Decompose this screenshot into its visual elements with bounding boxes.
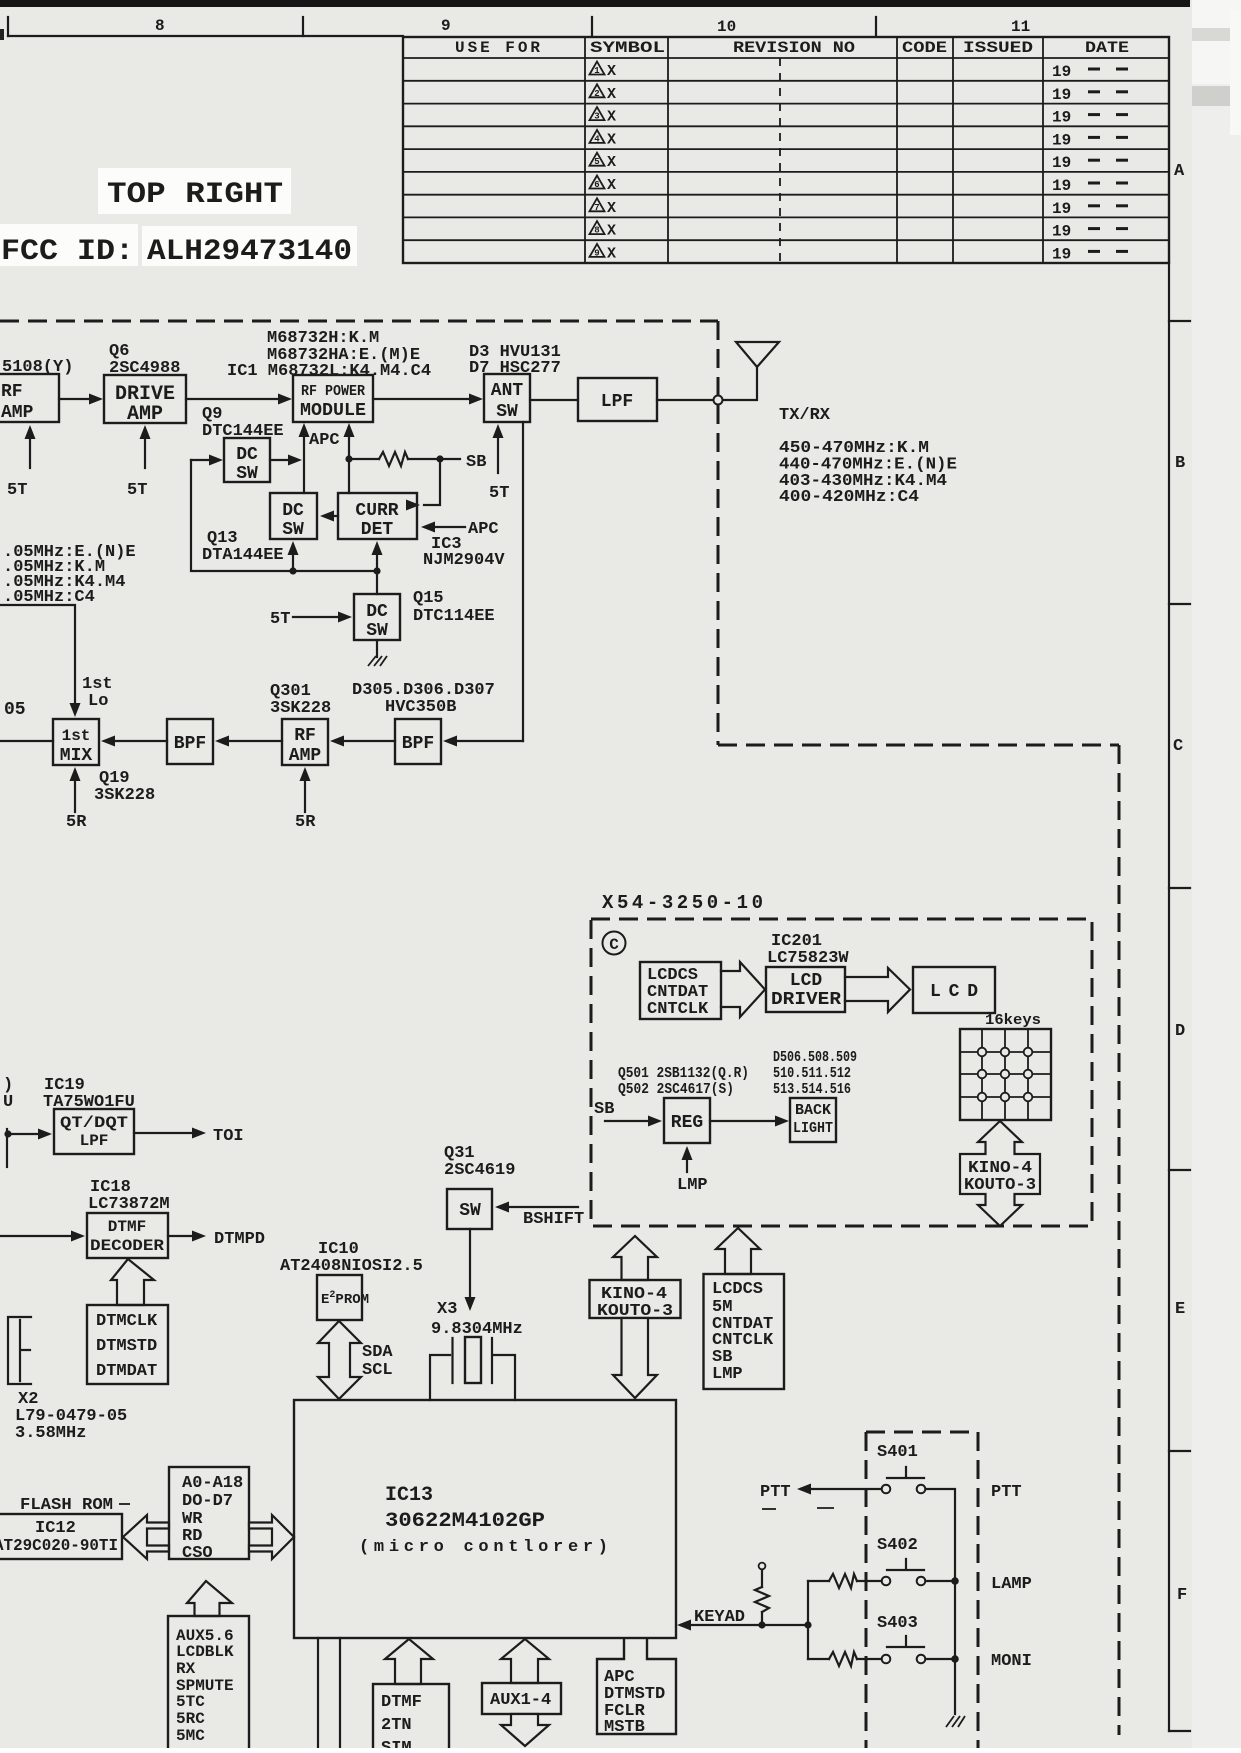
svg-text:HVC350B: HVC350B bbox=[385, 698, 456, 717]
svg-text:19: 19 bbox=[1052, 154, 1071, 172]
svg-text:AUX1-4: AUX1-4 bbox=[490, 1691, 551, 1710]
svg-text:MIX: MIX bbox=[60, 746, 93, 766]
svg-text:IC13: IC13 bbox=[385, 1484, 433, 1507]
svg-text:7: 7 bbox=[594, 203, 599, 213]
svg-text:RF: RF bbox=[1, 382, 23, 402]
svg-text:30622M4102GP: 30622M4102GP bbox=[385, 1510, 545, 1533]
svg-text:D7 HSC277: D7 HSC277 bbox=[469, 359, 561, 378]
svg-text:X: X bbox=[607, 223, 616, 240]
svg-text:BPF: BPF bbox=[174, 734, 206, 754]
svg-text:ANT: ANT bbox=[491, 381, 524, 401]
svg-text:REVISION NO: REVISION NO bbox=[733, 39, 855, 57]
svg-text:SB: SB bbox=[466, 453, 486, 472]
svg-text:REG: REG bbox=[671, 1113, 703, 1133]
svg-text:X: X bbox=[607, 154, 616, 171]
svg-text:19: 19 bbox=[1052, 86, 1071, 104]
svg-text:5RC: 5RC bbox=[176, 1710, 205, 1728]
svg-text:DC: DC bbox=[366, 602, 388, 622]
svg-text:CODE: CODE bbox=[902, 39, 947, 57]
svg-text:5R: 5R bbox=[295, 813, 316, 832]
svg-text:DTMF: DTMF bbox=[381, 1693, 422, 1712]
svg-text:Q502 2SC4617(S): Q502 2SC4617(S) bbox=[618, 1082, 734, 1098]
svg-text:LCDCS: LCDCS bbox=[712, 1280, 763, 1299]
svg-text:CNTCLK: CNTCLK bbox=[647, 1000, 709, 1019]
svg-text:F: F bbox=[1177, 1586, 1187, 1605]
svg-text:X3: X3 bbox=[437, 1300, 457, 1319]
svg-text:X: X bbox=[607, 177, 616, 194]
svg-text:Q15: Q15 bbox=[413, 589, 444, 608]
svg-text:MODULE: MODULE bbox=[300, 401, 366, 421]
svg-text:5MC: 5MC bbox=[176, 1727, 205, 1745]
svg-text:10: 10 bbox=[717, 18, 736, 36]
svg-text:SDA: SDA bbox=[362, 1343, 393, 1362]
svg-text:513.514.516: 513.514.516 bbox=[773, 1082, 851, 1098]
svg-text:DTMCLK: DTMCLK bbox=[96, 1312, 158, 1331]
svg-text:SW: SW bbox=[459, 1201, 481, 1221]
svg-text:19: 19 bbox=[1052, 223, 1071, 241]
svg-text:SB: SB bbox=[594, 1100, 614, 1119]
svg-text:Lo: Lo bbox=[88, 692, 108, 711]
svg-text:C: C bbox=[609, 936, 619, 954]
svg-text:LMP: LMP bbox=[677, 1176, 708, 1195]
svg-text:QT/DQT: QT/DQT bbox=[60, 1114, 128, 1132]
svg-text:2TN: 2TN bbox=[381, 1716, 412, 1735]
svg-text:S401: S401 bbox=[877, 1443, 918, 1462]
svg-text:LC73872M: LC73872M bbox=[88, 1195, 170, 1214]
svg-text:PTT: PTT bbox=[991, 1483, 1022, 1502]
svg-text:DO-D7: DO-D7 bbox=[182, 1492, 233, 1511]
svg-text:ISSUED: ISSUED bbox=[963, 39, 1033, 57]
svg-text:SW: SW bbox=[496, 402, 518, 422]
svg-text:4: 4 bbox=[594, 134, 600, 144]
svg-text:TOP RIGHT: TOP RIGHT bbox=[107, 178, 283, 212]
svg-text:AMP: AMP bbox=[289, 746, 322, 766]
svg-text:MSTB: MSTB bbox=[604, 1718, 645, 1737]
svg-text:RF: RF bbox=[294, 726, 316, 746]
svg-text:510.511.512: 510.511.512 bbox=[773, 1066, 851, 1082]
svg-text:SIM: SIM bbox=[381, 1739, 412, 1748]
svg-text:LCD: LCD bbox=[930, 982, 978, 1002]
svg-text:IC12: IC12 bbox=[35, 1519, 76, 1538]
svg-text:3: 3 bbox=[594, 112, 599, 122]
svg-text:CURR: CURR bbox=[355, 501, 398, 521]
svg-text:5108(Y): 5108(Y) bbox=[2, 358, 73, 377]
svg-text:SW: SW bbox=[236, 464, 258, 484]
svg-text:A0-A18: A0-A18 bbox=[182, 1474, 243, 1493]
svg-text:DC: DC bbox=[282, 501, 304, 521]
svg-text:IC1 M68732L:K4.M4.C4: IC1 M68732L:K4.M4.C4 bbox=[227, 362, 431, 381]
svg-text:LC75823W: LC75823W bbox=[767, 949, 849, 968]
svg-text:C: C bbox=[1173, 737, 1183, 756]
svg-text:LIGHT: LIGHT bbox=[793, 1120, 833, 1137]
svg-text:(micro contlorer): (micro contlorer) bbox=[359, 1538, 608, 1557]
svg-text:B: B bbox=[1175, 454, 1185, 473]
svg-text:Q501 2SB1132(Q.R): Q501 2SB1132(Q.R) bbox=[618, 1066, 749, 1082]
svg-text:RF POWER: RF POWER bbox=[301, 383, 365, 400]
svg-text:NJM2904V: NJM2904V bbox=[423, 551, 505, 570]
svg-text:DTMF: DTMF bbox=[108, 1218, 146, 1236]
svg-text:DTC114EE: DTC114EE bbox=[413, 607, 495, 626]
svg-text:5R: 5R bbox=[66, 813, 87, 832]
svg-text:ALH29473140: ALH29473140 bbox=[147, 235, 352, 269]
svg-text:E: E bbox=[1175, 1300, 1185, 1319]
svg-text:9: 9 bbox=[594, 248, 599, 258]
svg-text:5TC: 5TC bbox=[176, 1693, 205, 1711]
svg-text:400-420MHz:C4: 400-420MHz:C4 bbox=[779, 488, 919, 507]
svg-text:8: 8 bbox=[594, 226, 599, 236]
svg-text:8: 8 bbox=[155, 17, 165, 35]
svg-text:3SK228: 3SK228 bbox=[270, 699, 331, 718]
svg-text:U: U bbox=[3, 1093, 13, 1112]
svg-text:PTT: PTT bbox=[760, 1483, 791, 1502]
svg-text:5T: 5T bbox=[7, 481, 27, 500]
svg-text:DECODER: DECODER bbox=[90, 1237, 164, 1255]
svg-text:CSO: CSO bbox=[182, 1544, 213, 1563]
svg-text:SW: SW bbox=[282, 520, 304, 540]
svg-text:5T: 5T bbox=[270, 610, 290, 629]
svg-text:X: X bbox=[607, 200, 616, 217]
svg-text:BSHIFT: BSHIFT bbox=[523, 1210, 584, 1229]
svg-text:05: 05 bbox=[4, 700, 26, 720]
svg-text:X: X bbox=[607, 131, 616, 148]
svg-text:9: 9 bbox=[441, 17, 451, 35]
svg-text:1: 1 bbox=[594, 66, 600, 76]
svg-text:5T: 5T bbox=[489, 484, 509, 503]
svg-text:LCD: LCD bbox=[790, 971, 823, 991]
svg-text:BACK: BACK bbox=[795, 1102, 831, 1119]
svg-text:2: 2 bbox=[594, 89, 599, 99]
svg-text:19: 19 bbox=[1052, 177, 1071, 195]
svg-text:SCL: SCL bbox=[362, 1361, 393, 1380]
svg-text:X: X bbox=[607, 245, 616, 262]
svg-text:DRIVER: DRIVER bbox=[771, 990, 841, 1010]
svg-text:11: 11 bbox=[1011, 18, 1030, 36]
svg-text:AT29C020-90TI: AT29C020-90TI bbox=[0, 1537, 118, 1556]
svg-text:2SC4988: 2SC4988 bbox=[109, 359, 180, 378]
svg-text:SW: SW bbox=[366, 621, 388, 641]
svg-text:MONI: MONI bbox=[991, 1652, 1032, 1671]
svg-text:AMP: AMP bbox=[127, 403, 163, 426]
svg-text:D: D bbox=[1175, 1022, 1185, 1041]
svg-text:3.58MHz: 3.58MHz bbox=[15, 1424, 86, 1443]
svg-text:1st: 1st bbox=[62, 727, 91, 745]
svg-text:FCC ID:: FCC ID: bbox=[1, 235, 134, 269]
svg-text:X54-3250-10: X54-3250-10 bbox=[602, 892, 763, 914]
svg-text:APC: APC bbox=[468, 520, 499, 539]
svg-text:SYMBOL: SYMBOL bbox=[590, 39, 665, 57]
svg-text:X: X bbox=[607, 86, 616, 103]
svg-text:S403: S403 bbox=[877, 1614, 918, 1633]
svg-text:LMP: LMP bbox=[712, 1365, 743, 1384]
svg-text:KOUTO-3: KOUTO-3 bbox=[964, 1176, 1036, 1195]
svg-text:DATE: DATE bbox=[1085, 39, 1129, 57]
svg-text:2SC4619: 2SC4619 bbox=[444, 1161, 515, 1180]
svg-text:DTMPD: DTMPD bbox=[214, 1230, 265, 1249]
svg-text:APC: APC bbox=[309, 431, 340, 450]
svg-text:DTMDAT: DTMDAT bbox=[96, 1362, 157, 1381]
svg-text:E2PROM: E2PROM bbox=[321, 1290, 369, 1308]
svg-text:RX: RX bbox=[176, 1660, 196, 1678]
svg-text:DET: DET bbox=[361, 520, 394, 540]
svg-text:TOI: TOI bbox=[213, 1127, 244, 1146]
svg-text:LAMP: LAMP bbox=[991, 1575, 1032, 1594]
svg-text:AMP: AMP bbox=[1, 403, 34, 423]
svg-text:6: 6 bbox=[594, 180, 599, 190]
svg-text:19: 19 bbox=[1052, 63, 1071, 81]
svg-text:19: 19 bbox=[1052, 200, 1071, 218]
svg-text:S402: S402 bbox=[877, 1536, 918, 1555]
svg-text:LPF: LPF bbox=[601, 392, 633, 412]
svg-text:5: 5 bbox=[594, 157, 599, 167]
svg-text:FLASH ROM: FLASH ROM bbox=[20, 1496, 113, 1515]
svg-text:LCDBLK: LCDBLK bbox=[176, 1643, 234, 1661]
svg-text:DC: DC bbox=[236, 445, 258, 465]
svg-text:DTMSTD: DTMSTD bbox=[96, 1337, 157, 1356]
svg-text:19: 19 bbox=[1052, 109, 1071, 127]
svg-text:5T: 5T bbox=[127, 481, 147, 500]
svg-text:19: 19 bbox=[1052, 131, 1071, 149]
svg-text:LPF: LPF bbox=[80, 1132, 109, 1150]
svg-text:19: 19 bbox=[1052, 245, 1071, 263]
svg-text:BPF: BPF bbox=[402, 734, 434, 754]
svg-text:16keys: 16keys bbox=[985, 1012, 1041, 1029]
svg-text:D506.508.509: D506.508.509 bbox=[773, 1050, 857, 1066]
svg-text:DTA144EE: DTA144EE bbox=[202, 546, 284, 565]
svg-text:X: X bbox=[607, 63, 616, 80]
svg-text:3SK228: 3SK228 bbox=[94, 786, 155, 805]
svg-text:TX/RX: TX/RX bbox=[779, 406, 831, 425]
svg-text:A: A bbox=[1174, 162, 1185, 181]
svg-text:AT2408NIOSI2.5: AT2408NIOSI2.5 bbox=[280, 1257, 423, 1276]
svg-text:X: X bbox=[607, 109, 616, 126]
